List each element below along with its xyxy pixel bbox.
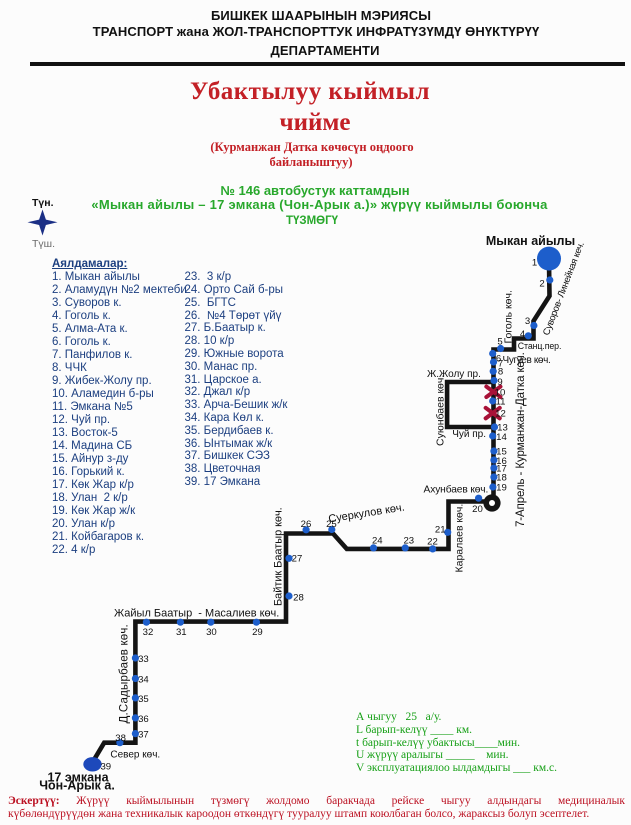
svg-text:Мыкан айылы: Мыкан айылы bbox=[486, 234, 575, 248]
svg-text:22: 22 bbox=[427, 537, 438, 548]
svg-text:12: 12 bbox=[495, 409, 506, 420]
svg-text:3: 3 bbox=[525, 316, 530, 327]
svg-text:26: 26 bbox=[301, 519, 312, 530]
svg-text:1: 1 bbox=[532, 258, 537, 269]
svg-text:23: 23 bbox=[403, 536, 414, 547]
svg-text:Станц.пер.: Станц.пер. bbox=[518, 341, 562, 351]
svg-text:37: 37 bbox=[138, 730, 149, 741]
svg-text:Север көч.: Север көч. bbox=[110, 750, 160, 761]
svg-text:4: 4 bbox=[520, 329, 526, 340]
svg-text:Байтик Баатыр көч.: Байтик Баатыр көч. bbox=[273, 507, 285, 606]
svg-text:9: 9 bbox=[497, 377, 502, 388]
svg-text:36: 36 bbox=[138, 714, 149, 725]
svg-text:Каралаев көч.: Каралаев көч. bbox=[454, 504, 466, 573]
svg-text:11: 11 bbox=[496, 397, 506, 408]
svg-text:Чуй пр.: Чуй пр. bbox=[452, 429, 486, 440]
svg-text:Суюнбаев көч.: Суюнбаев көч. bbox=[435, 375, 447, 446]
svg-text:Суеркулов көч.: Суеркулов көч. bbox=[328, 502, 406, 526]
svg-text:30: 30 bbox=[206, 627, 217, 638]
svg-text:29: 29 bbox=[252, 627, 263, 638]
svg-text:7-Апрель - Курманжан-Датка көч: 7-Апрель - Курманжан-Датка көч. bbox=[515, 352, 527, 527]
svg-text:24: 24 bbox=[372, 536, 383, 547]
svg-text:31: 31 bbox=[176, 627, 187, 638]
svg-text:33: 33 bbox=[138, 654, 149, 665]
svg-text:38: 38 bbox=[115, 733, 126, 744]
svg-text:2: 2 bbox=[539, 279, 544, 290]
svg-text:35: 35 bbox=[138, 694, 149, 705]
svg-text:Ахунбаев көч.: Ахунбаев көч. bbox=[424, 484, 489, 496]
svg-text:19: 19 bbox=[496, 483, 507, 494]
svg-text:Д.Садырбаев көч.: Д.Садырбаев көч. bbox=[119, 624, 131, 723]
svg-text:27: 27 bbox=[292, 554, 303, 565]
svg-text:Жайыл Баатыр - Масалиев көч.: Жайыл Баатыр - Масалиев көч. bbox=[114, 608, 279, 620]
svg-text:34: 34 bbox=[138, 675, 149, 686]
svg-text:8: 8 bbox=[498, 367, 503, 378]
svg-text:Чон-Арык а.: Чон-Арык а. bbox=[39, 779, 115, 793]
svg-text:21: 21 bbox=[435, 525, 446, 536]
svg-text:Гоголь көч.: Гоголь көч. bbox=[503, 290, 515, 343]
svg-text:14: 14 bbox=[496, 432, 507, 443]
svg-text:28: 28 bbox=[293, 593, 304, 604]
svg-text:20: 20 bbox=[472, 504, 483, 515]
svg-text:32: 32 bbox=[143, 627, 154, 638]
